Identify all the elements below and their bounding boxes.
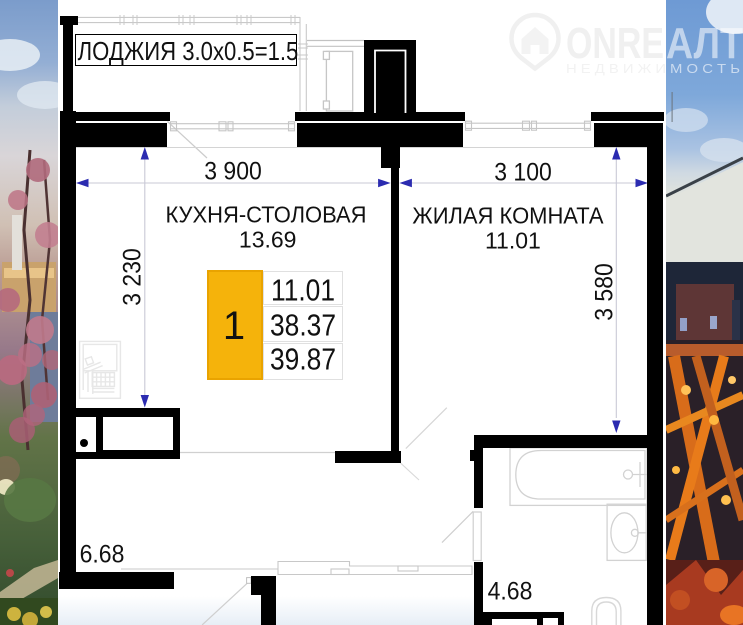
svg-text:Н Е Д В И Ж И: Н Е Д В И Ж И: [566, 61, 666, 76]
svg-text:М О С Т Ь: М О С Т Ь: [670, 61, 740, 76]
